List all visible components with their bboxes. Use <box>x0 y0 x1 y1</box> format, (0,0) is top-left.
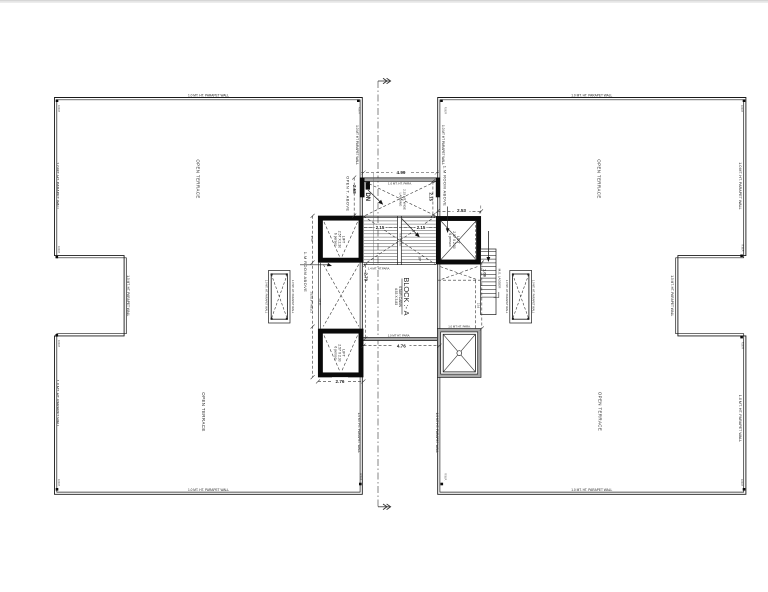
svg-text:F.B.D.: F.B.D. <box>318 299 321 306</box>
svg-text:2.30: 2.30 <box>310 236 314 242</box>
svg-text:R.W.P.: R.W.P. <box>57 340 60 347</box>
svg-text:1.0 MT HT PARAPET WALL: 1.0 MT HT PARAPET WALL <box>441 125 445 165</box>
svg-text:OPEN TERRACE: OPEN TERRACE <box>201 392 206 431</box>
svg-text:R.W.P.: R.W.P. <box>740 479 743 486</box>
svg-text:DN: DN <box>364 192 370 201</box>
svg-text:1.0 MT. HT. PARAPET WALL: 1.0 MT. HT. PARAPET WALL <box>738 162 742 209</box>
svg-text:1.0 MT. HT. PARA.: 1.0 MT. HT. PARA. <box>388 181 412 185</box>
svg-text:M.S. LADDER: M.S. LADDER <box>498 269 502 290</box>
svg-text:1.0 MT. HT. PARAPET WALL: 1.0 MT. HT. PARAPET WALL <box>505 280 509 314</box>
svg-text:R.W.P.: R.W.P. <box>359 473 362 480</box>
svg-text:OPEN T. ABOVE: OPEN T. ABOVE <box>346 176 351 211</box>
svg-text:BLOCK :- A: BLOCK :- A <box>402 277 411 315</box>
svg-text:1.0 MT. HT. PARAPET WALL: 1.0 MT. HT. PARAPET WALL <box>56 380 60 427</box>
svg-text:OPEN TERRACE: OPEN TERRACE <box>596 159 601 198</box>
svg-text:2.15: 2.15 <box>428 193 433 202</box>
svg-text:R.W.P.: R.W.P. <box>741 342 744 349</box>
svg-text:2.16: 2.16 <box>476 303 480 309</box>
svg-text:4.76: 4.76 <box>397 343 406 348</box>
svg-text:1.0 MT. HT. PARAPET WALL: 1.0 MT. HT. PARAPET WALL <box>571 488 612 492</box>
svg-text:6 person: 6 person <box>333 233 337 246</box>
svg-text:1.08: 1.08 <box>483 269 488 278</box>
svg-text:R.W.P.: R.W.P. <box>357 107 360 114</box>
svg-text:1.0 MT. HT. PARAPET WALL: 1.0 MT. HT. PARAPET WALL <box>188 488 229 492</box>
svg-text:2.76: 2.76 <box>336 379 345 384</box>
svg-text:1.0 MT HT. PARA.: 1.0 MT HT. PARA. <box>388 334 411 338</box>
svg-text:1.0 MT. HT. PARAPET WALL: 1.0 MT. HT. PARAPET WALL <box>265 280 269 314</box>
svg-text:1.4 MT. HT.PARA.: 1.4 MT. HT.PARA. <box>368 266 391 270</box>
svg-text:1.0 MT HT PARAPET WALL: 1.0 MT HT PARAPET WALL <box>355 125 359 165</box>
svg-text:UP: UP <box>418 257 422 261</box>
svg-text:1.0 MT. HT. PARAPET WALL: 1.0 MT. HT. PARAPET WALL <box>738 395 742 442</box>
svg-text:2.15: 2.15 <box>376 225 385 230</box>
svg-text:2.53: 2.53 <box>457 208 466 213</box>
svg-text:4.53 X 3.83: 4.53 X 3.83 <box>394 288 398 305</box>
svg-text:4.99: 4.99 <box>397 170 406 175</box>
svg-text:2.79: 2.79 <box>364 273 369 282</box>
svg-text:1.0 MT HT. PARAPET WALL: 1.0 MT HT. PARAPET WALL <box>357 413 361 454</box>
svg-text:OPEN TERRACE: OPEN TERRACE <box>598 392 603 431</box>
svg-text:6 person: 6 person <box>333 346 337 359</box>
svg-text:1.M ROOM ABOVE: 1.M ROOM ABOVE <box>303 252 308 293</box>
svg-text:1.0 MT. HT. PARAPET WALL: 1.0 MT. HT. PARAPET WALL <box>188 93 229 97</box>
svg-text:1.03 (LIFT WELL): 1.03 (LIFT WELL) <box>309 291 313 312</box>
svg-text:R.W.P.: R.W.P. <box>57 479 60 486</box>
svg-text:R.W.P.: R.W.P. <box>444 107 447 114</box>
svg-text:1.0 MT. HT. PARAPET WALL: 1.0 MT. HT. PARAPET WALL <box>532 280 536 314</box>
svg-text:1.0 MT. HT. PARAPET WALL: 1.0 MT. HT. PARAPET WALL <box>571 93 612 97</box>
svg-text:1.0 MT. HT. PARAPET WALL: 1.0 MT. HT. PARAPET WALL <box>670 275 674 316</box>
svg-text:6 person: 6 person <box>448 233 452 246</box>
svg-text:R.W.P.: R.W.P. <box>57 105 60 112</box>
svg-text:1.0 MT. HT. PARAPET WALL: 1.0 MT. HT. PARAPET WALL <box>291 280 295 314</box>
svg-text:1.0 MT. HT. PARAPET WALL: 1.0 MT. HT. PARAPET WALL <box>126 275 130 316</box>
svg-text:R.W.P.: R.W.P. <box>741 244 744 251</box>
svg-text:R.W.P.: R.W.P. <box>740 105 743 112</box>
svg-text:1.0 MT HT. PARA.: 1.0 MT HT. PARA. <box>448 325 471 329</box>
svg-text:1.M ROOM ABOVE: 1.M ROOM ABOVE <box>442 166 447 207</box>
svg-text:2.15: 2.15 <box>417 225 426 230</box>
svg-text:R.W.P.: R.W.P. <box>57 246 60 253</box>
svg-text:R.W.P.: R.W.P. <box>444 473 447 480</box>
svg-text:LANDING: LANDING <box>398 193 402 207</box>
svg-text:OPEN TERRACE: OPEN TERRACE <box>196 159 201 198</box>
svg-text:M.S. RAILING: M.S. RAILING <box>399 234 402 247</box>
svg-text:1.0 MT HT. PARAPET WALL: 1.0 MT HT. PARAPET WALL <box>435 413 439 454</box>
svg-text:2.58: 2.58 <box>352 185 357 194</box>
svg-text:1.0 MT. HT. PARAPET WALL: 1.0 MT. HT. PARAPET WALL <box>56 162 60 209</box>
